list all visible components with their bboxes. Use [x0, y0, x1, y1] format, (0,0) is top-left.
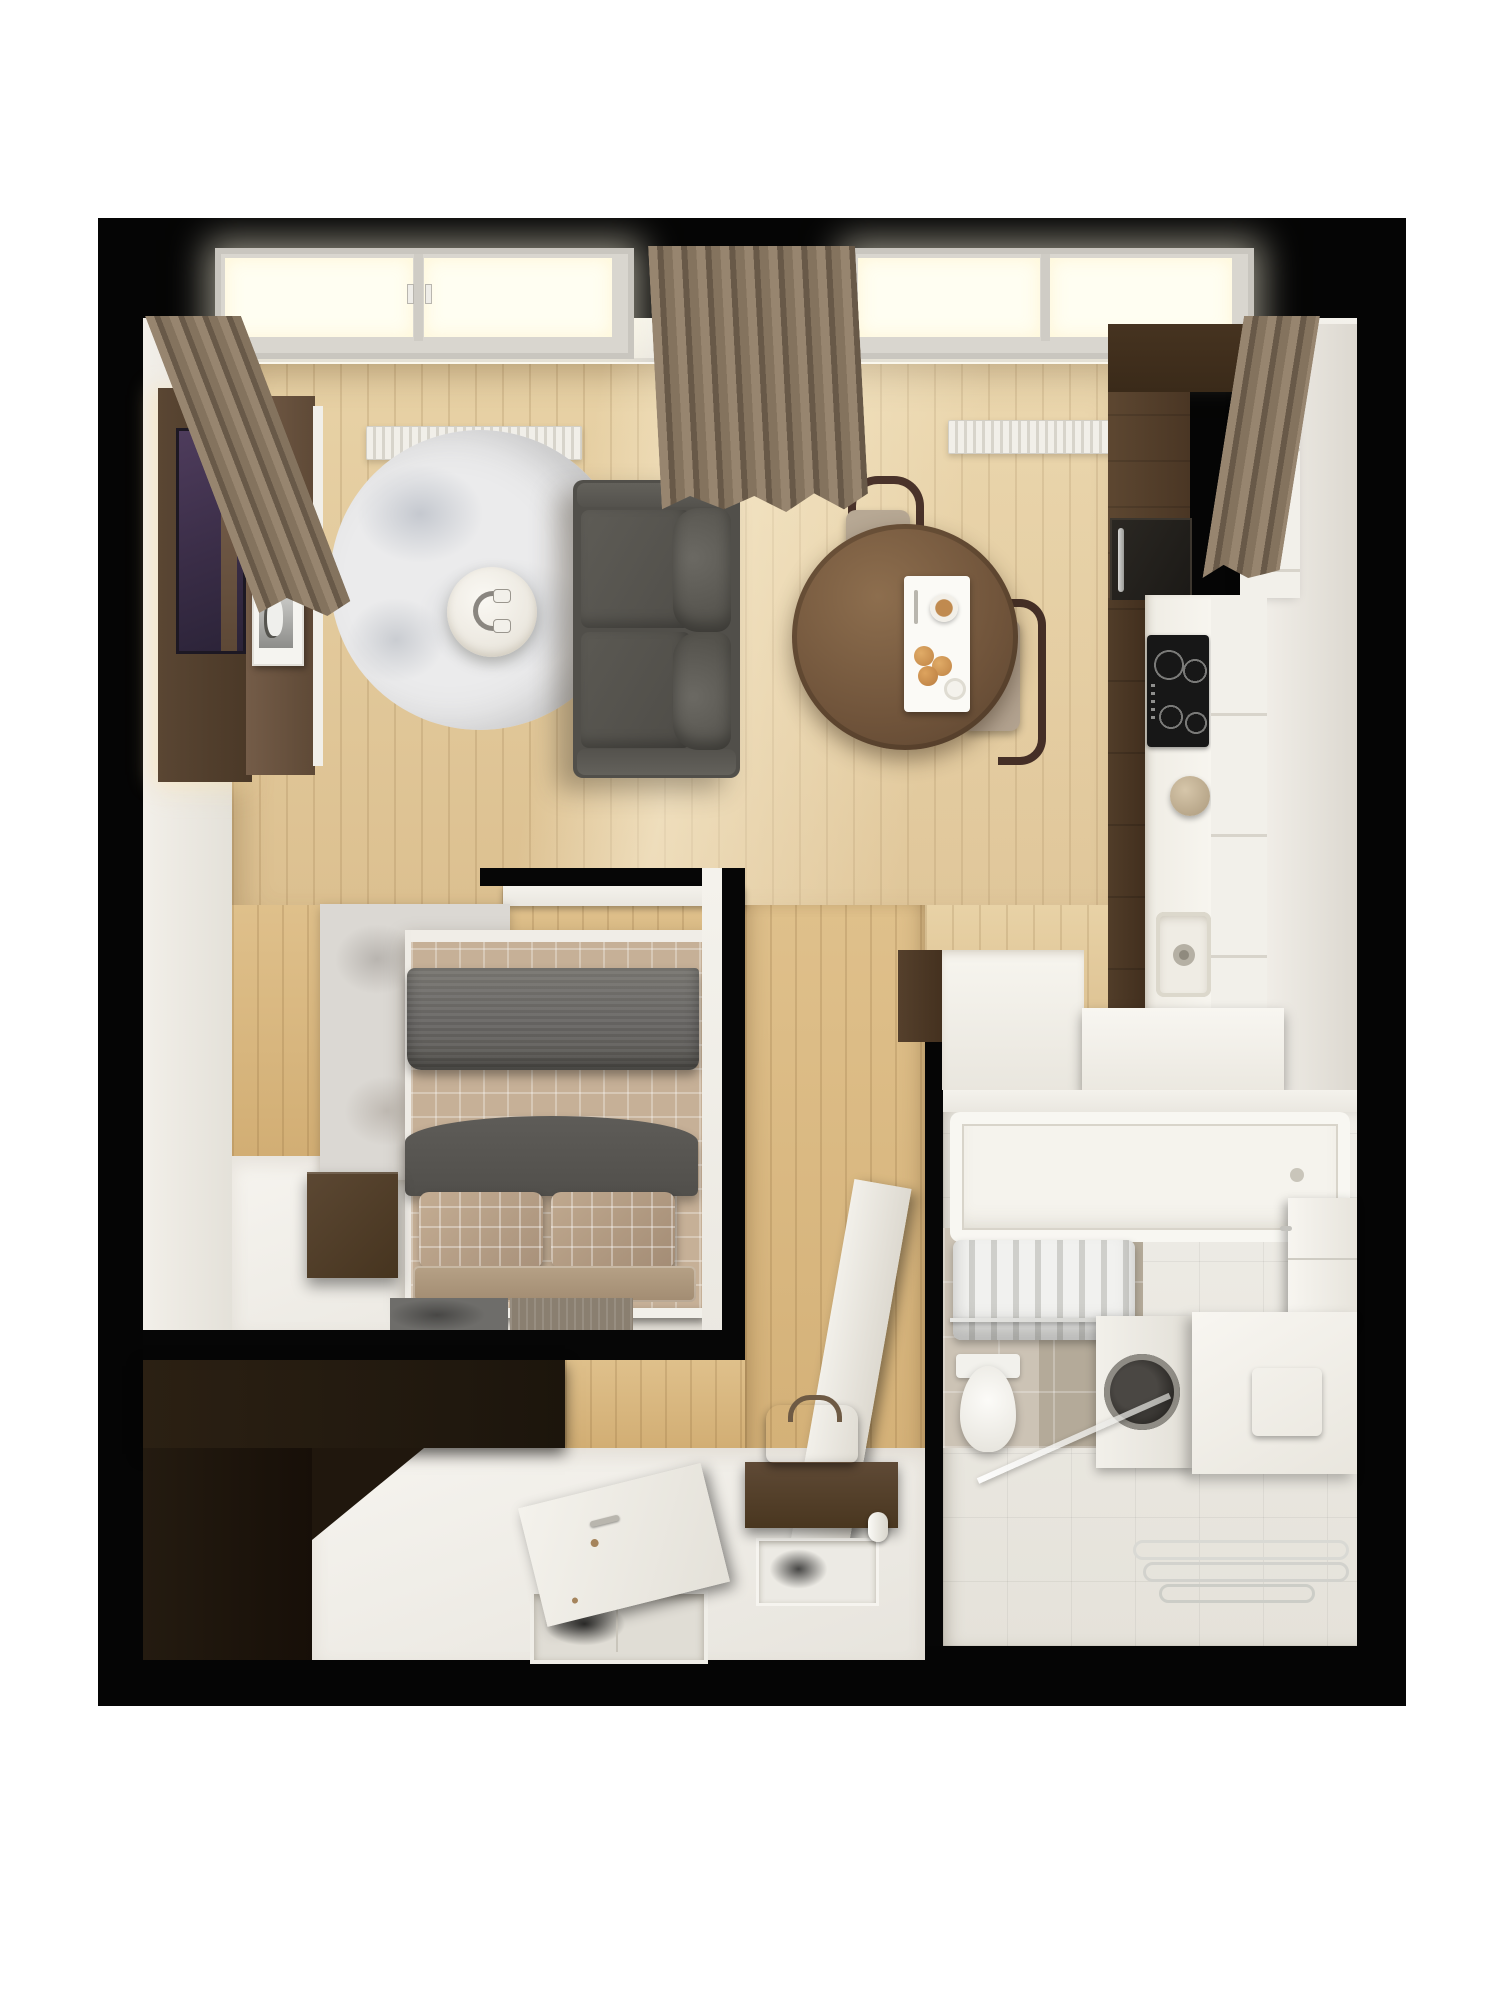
skylight-window-left: [215, 248, 634, 359]
wardrobe: [143, 1360, 565, 1448]
window-mullion: [1041, 254, 1050, 341]
sofa-armrest: [577, 749, 736, 775]
paper-roll: [868, 1512, 888, 1542]
sofa-back-cushion: [673, 632, 731, 750]
built-in-oven: [1110, 518, 1192, 606]
vanity-unit: [1288, 1198, 1357, 1324]
entry-wood-strip: [565, 1360, 745, 1448]
plate: [944, 678, 966, 700]
bedside-mat-dark: [390, 1298, 508, 1332]
laundry-counter: [1192, 1312, 1357, 1474]
bun: [914, 646, 934, 666]
bathroom-north-wall: [925, 1090, 1357, 1114]
kitchen-base-cabinets: [1108, 600, 1145, 1042]
window-glass: [225, 258, 413, 337]
gloss-shadow-blob: [767, 1545, 837, 1593]
page: [0, 0, 1505, 2000]
headphone-cup: [493, 589, 511, 603]
vanity-faucet: [1280, 1226, 1292, 1231]
toilet: [954, 1354, 1024, 1456]
foot-blanket: [405, 1116, 698, 1196]
window-glass: [858, 258, 1040, 337]
induction-cooktop: [1147, 635, 1209, 747]
kettle: [1170, 776, 1210, 816]
headphones: [471, 589, 511, 633]
corridor-gloss-panel: [756, 1538, 879, 1606]
hall-wall-cut: [143, 1330, 745, 1360]
bedside-mat-taupe: [510, 1298, 633, 1332]
double-bed: [405, 930, 716, 1310]
nightstand: [307, 1172, 398, 1278]
side-table: [447, 567, 537, 657]
tub-drain: [1290, 1168, 1304, 1182]
wardrobe-side: [143, 1448, 312, 1660]
curtain-center: [648, 246, 869, 512]
render-frame: [98, 218, 1406, 1706]
headphone-cup: [493, 619, 511, 633]
coffee-cup: [930, 594, 958, 622]
door-hinge: [571, 1597, 578, 1604]
knit-blanket: [407, 968, 699, 1070]
peninsula-counter: [1082, 1008, 1284, 1092]
sink-drain: [1173, 944, 1195, 966]
hook-bar: [1133, 1540, 1349, 1560]
plaid-pillow: [419, 1192, 543, 1268]
hook-bar: [1159, 1584, 1315, 1603]
mattress-edge: [411, 930, 708, 942]
peninsula-brown-end: [898, 950, 942, 1042]
leather-bag: [766, 1405, 858, 1463]
folded-towel-beige: [1252, 1368, 1322, 1436]
breakfast-tray: [904, 576, 970, 712]
bun: [918, 666, 938, 686]
oven-handle: [1118, 528, 1124, 592]
window-glass: [424, 258, 612, 337]
towel-hooks: [1133, 1536, 1357, 1602]
window-mullion: [414, 254, 423, 341]
kitchen-sink: [1156, 912, 1211, 997]
sofa: [573, 480, 740, 778]
washing-machine: [1096, 1316, 1192, 1468]
spoon: [914, 590, 918, 624]
peninsula-white-block: [942, 950, 1084, 1092]
bag-handle: [788, 1395, 842, 1422]
hook-bar: [1143, 1562, 1349, 1582]
window-handle: [407, 284, 414, 304]
cooktop-controls: [1151, 679, 1155, 719]
door-handle: [589, 1514, 620, 1527]
sofa-back-cushion: [673, 508, 731, 632]
window-handle: [425, 284, 432, 304]
door-keyhole: [590, 1538, 600, 1548]
bathroom-left-wall: [925, 1090, 943, 1646]
dining-table: [792, 524, 1018, 750]
vanity-drawer-seam: [1288, 1258, 1357, 1260]
toilet-bowl: [960, 1366, 1016, 1452]
plaid-pillow: [551, 1192, 675, 1268]
headboard-cushions: [413, 1266, 696, 1302]
console-shelf: [745, 1462, 898, 1528]
